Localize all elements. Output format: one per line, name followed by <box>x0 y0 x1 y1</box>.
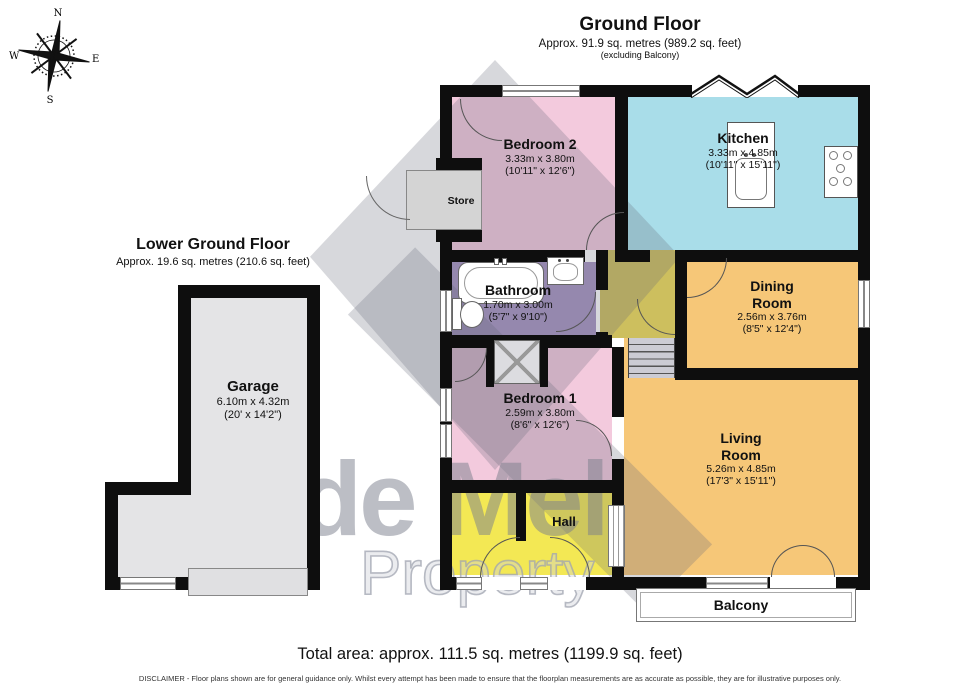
window <box>440 388 452 422</box>
room-dims-imperial: (10'11" x 12'6") <box>470 165 610 177</box>
room-dims-metric: 5.26m x 4.85m <box>666 463 816 475</box>
room-name: Dining Room <box>736 278 808 311</box>
hob-burner <box>843 177 852 186</box>
wall-segment <box>105 482 118 590</box>
hob-burner <box>829 177 838 186</box>
watermark-brand-text: de Mel <box>298 447 607 552</box>
label-dining-room: Dining Room 2.56m x 3.76m (8'5" x 12'4") <box>697 278 847 336</box>
tap-dot <box>558 259 561 262</box>
lower-ground-floor-title: Lower Ground Floor <box>93 236 333 254</box>
hob-burner <box>843 151 852 160</box>
room-name: Bathroom <box>440 282 596 299</box>
total-area-text: Total area: approx. 111.5 sq. metres (11… <box>0 645 980 664</box>
disclaimer-text: DISCLAIMER - Floor plans shown are for g… <box>0 674 980 683</box>
wall-segment <box>452 480 612 493</box>
label-bedroom1: Bedroom 1 2.59m x 3.80m (8'6" x 12'6") <box>462 390 618 431</box>
wall-segment <box>436 230 482 242</box>
wall-segment <box>596 250 608 290</box>
room-dims-metric: 2.59m x 3.80m <box>462 407 618 419</box>
room-garage <box>191 298 307 578</box>
window <box>456 577 482 590</box>
window <box>520 577 548 590</box>
window <box>858 280 870 328</box>
room-dims-imperial: (5'7" x 9'10") <box>440 311 596 323</box>
label-store: Store <box>426 195 496 207</box>
staircase <box>628 338 675 378</box>
wall-segment <box>858 85 870 590</box>
ground-floor-title-block: Ground Floor Approx. 91.9 sq. metres (98… <box>510 14 770 60</box>
label-living-room: Living Room 5.26m x 4.85m (17'3" x 15'11… <box>666 430 816 488</box>
room-name: Bedroom 1 <box>462 390 618 407</box>
window <box>502 85 580 97</box>
floorplan-page: N E S W Ground Floor Approx. 91.9 sq. me… <box>0 0 980 690</box>
room-dims-imperial: (20' x 14'2") <box>177 409 329 422</box>
lower-ground-floor-area: Approx. 19.6 sq. metres (210.6 sq. feet) <box>93 256 333 268</box>
bath-tap <box>494 258 499 265</box>
door-threshold <box>482 577 520 590</box>
wall-segment <box>615 250 650 262</box>
room-dims-metric: 6.10m x 4.32m <box>177 396 329 409</box>
kitchen-zigzag-edge <box>689 72 801 98</box>
compass-s: S <box>47 95 54 104</box>
garage-door <box>188 568 308 596</box>
room-dims-metric: 1.70m x 3.00m <box>440 299 596 311</box>
room-dims-metric: 3.33m x 3.80m <box>470 153 610 165</box>
wall-segment <box>675 250 687 380</box>
compass-rose: N E S W <box>8 4 100 104</box>
room-dims-imperial: (8'6" x 12'6") <box>462 419 618 431</box>
room-dims-imperial: (10'11" x 15'11") <box>665 159 821 171</box>
wall-segment <box>677 368 870 380</box>
wall-segment <box>612 459 624 505</box>
wall-segment <box>516 493 526 541</box>
ground-floor-title: Ground Floor <box>510 14 770 36</box>
hob-burner <box>836 164 845 173</box>
shower-cubicle <box>494 340 540 384</box>
lower-ground-floor-title-block: Lower Ground Floor Approx. 19.6 sq. metr… <box>93 236 333 268</box>
label-hall: Hall <box>534 514 594 529</box>
door-threshold <box>548 577 586 590</box>
label-bathroom: Bathroom 1.70m x 3.00m (5'7" x 9'10") <box>440 282 596 323</box>
hob-burner <box>829 151 838 160</box>
room-name: Bedroom 2 <box>470 136 610 153</box>
bath-tap <box>502 258 507 265</box>
room-name: Garage <box>177 378 329 396</box>
window <box>120 577 176 590</box>
room-dims-metric: 3.33m x 4.85m <box>665 147 821 159</box>
wall-segment <box>307 285 320 578</box>
tap-dot <box>566 259 569 262</box>
room-dims-imperial: (17'3" x 15'11") <box>666 475 816 487</box>
wall-segment <box>612 567 624 577</box>
wall-segment <box>178 285 320 298</box>
wall-segment <box>540 335 548 387</box>
window <box>440 424 452 458</box>
room-name: Kitchen <box>665 130 821 147</box>
label-garage: Garage 6.10m x 4.32m (20' x 14'2") <box>177 378 329 422</box>
shower-tray-lines <box>495 341 539 383</box>
bathroom-sink-basin <box>553 263 578 281</box>
ground-floor-note: (excluding Balcony) <box>510 50 770 60</box>
compass-w: W <box>9 51 20 62</box>
room-dims-imperial: (8'5" x 12'4") <box>697 323 847 335</box>
wall-segment <box>486 335 494 387</box>
compass-e: E <box>92 54 99 65</box>
glazed-screen <box>608 505 625 567</box>
ground-floor-area: Approx. 91.9 sq. metres (989.2 sq. feet) <box>510 38 770 50</box>
room-garage-ext <box>118 495 194 578</box>
room-dims-metric: 2.56m x 3.76m <box>697 311 847 323</box>
label-bedroom2: Bedroom 2 3.33m x 3.80m (10'11" x 12'6") <box>470 136 610 177</box>
room-name: Living Room <box>705 430 777 463</box>
label-balcony: Balcony <box>686 597 796 614</box>
compass-n: N <box>54 8 63 19</box>
label-kitchen: Kitchen 3.33m x 4.85m (10'11" x 15'11") <box>665 130 821 171</box>
